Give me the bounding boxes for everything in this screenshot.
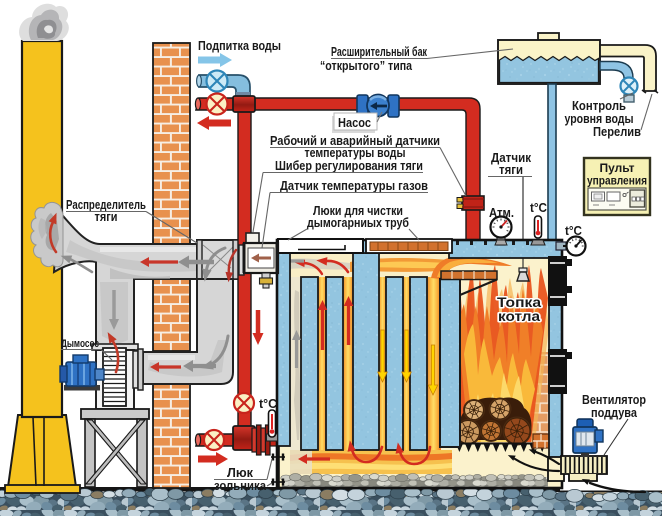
svg-text:тяги: тяги [499, 163, 523, 177]
svg-text:Расширительный бак: Расширительный бак [331, 44, 427, 59]
svg-text:Перелив: Перелив [593, 124, 641, 139]
svg-text:Насос: Насос [338, 116, 371, 130]
svg-text:Пульт: Пульт [600, 163, 635, 175]
svg-text:t°C: t°C [530, 200, 548, 215]
svg-text:t°C: t°C [565, 223, 583, 238]
svg-text:Дымосос: Дымосос [61, 338, 99, 350]
svg-text:Люк: Люк [227, 466, 254, 480]
svg-text:котла: котла [498, 309, 541, 324]
svg-text:дымогарниых труб: дымогарниых труб [307, 216, 409, 230]
svg-text:управления: управления [587, 176, 647, 188]
svg-text:Подпитка воды: Подпитка воды [198, 38, 281, 53]
svg-text:Датчик температуры газов: Датчик температуры газов [280, 179, 428, 193]
svg-text:поддува: поддува [591, 405, 638, 420]
svg-text:зольника: зольника [214, 479, 267, 493]
svg-text:температуры воды: температуры воды [305, 146, 406, 160]
svg-text:Атм.: Атм. [489, 205, 514, 220]
svg-text:t°C: t°C [259, 396, 278, 411]
svg-text:Топка: Топка [497, 295, 542, 310]
svg-text:тяги: тяги [95, 210, 118, 224]
svg-text:“открытого” типа: “открытого” типа [320, 58, 413, 73]
svg-text:Шибер регулирования тяги: Шибер регулирования тяги [275, 159, 423, 173]
